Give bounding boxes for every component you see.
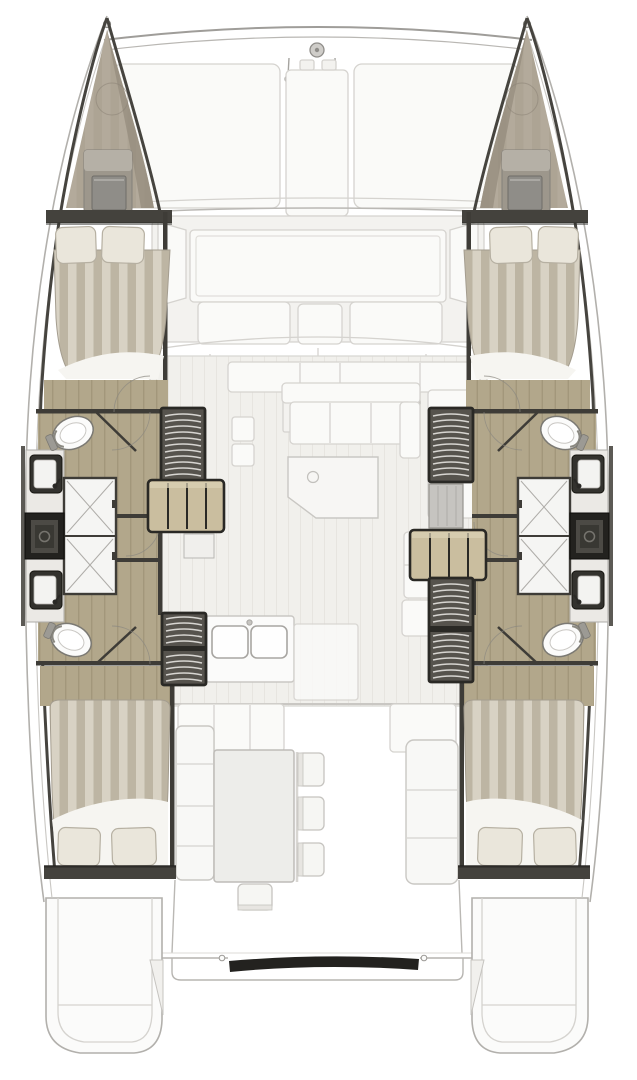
cockpit-bench-port: [176, 726, 214, 880]
cockpit-chair: [298, 843, 324, 876]
galley-sink-right: [251, 626, 287, 658]
galley-sink-left: [212, 626, 248, 658]
cockpit-chair: [238, 884, 272, 910]
cockpit-dining-table: [214, 750, 294, 882]
forward-bench-cushion: [298, 304, 342, 344]
salon-seat: [232, 444, 254, 466]
galley-faucet: [247, 620, 252, 625]
salon-seat: [232, 417, 254, 441]
cockpit-bench-starboard: [406, 740, 458, 884]
catamaran-floorplan: [0, 0, 637, 1080]
cockpit-chair: [298, 753, 324, 786]
forward-cockpit-well: [190, 230, 446, 302]
starboard-landing-panel: [429, 484, 463, 528]
forward-cockpit: [152, 216, 484, 344]
deck-panel-center: [286, 70, 348, 216]
port-transom-steps: [46, 898, 163, 1053]
foredeck-panels: [100, 60, 536, 216]
port-landing-locker: [184, 534, 214, 558]
catamaran-floorplan-page: [0, 0, 637, 1080]
cockpit-chair: [298, 797, 324, 830]
starboard-transom-steps: [471, 898, 588, 1053]
